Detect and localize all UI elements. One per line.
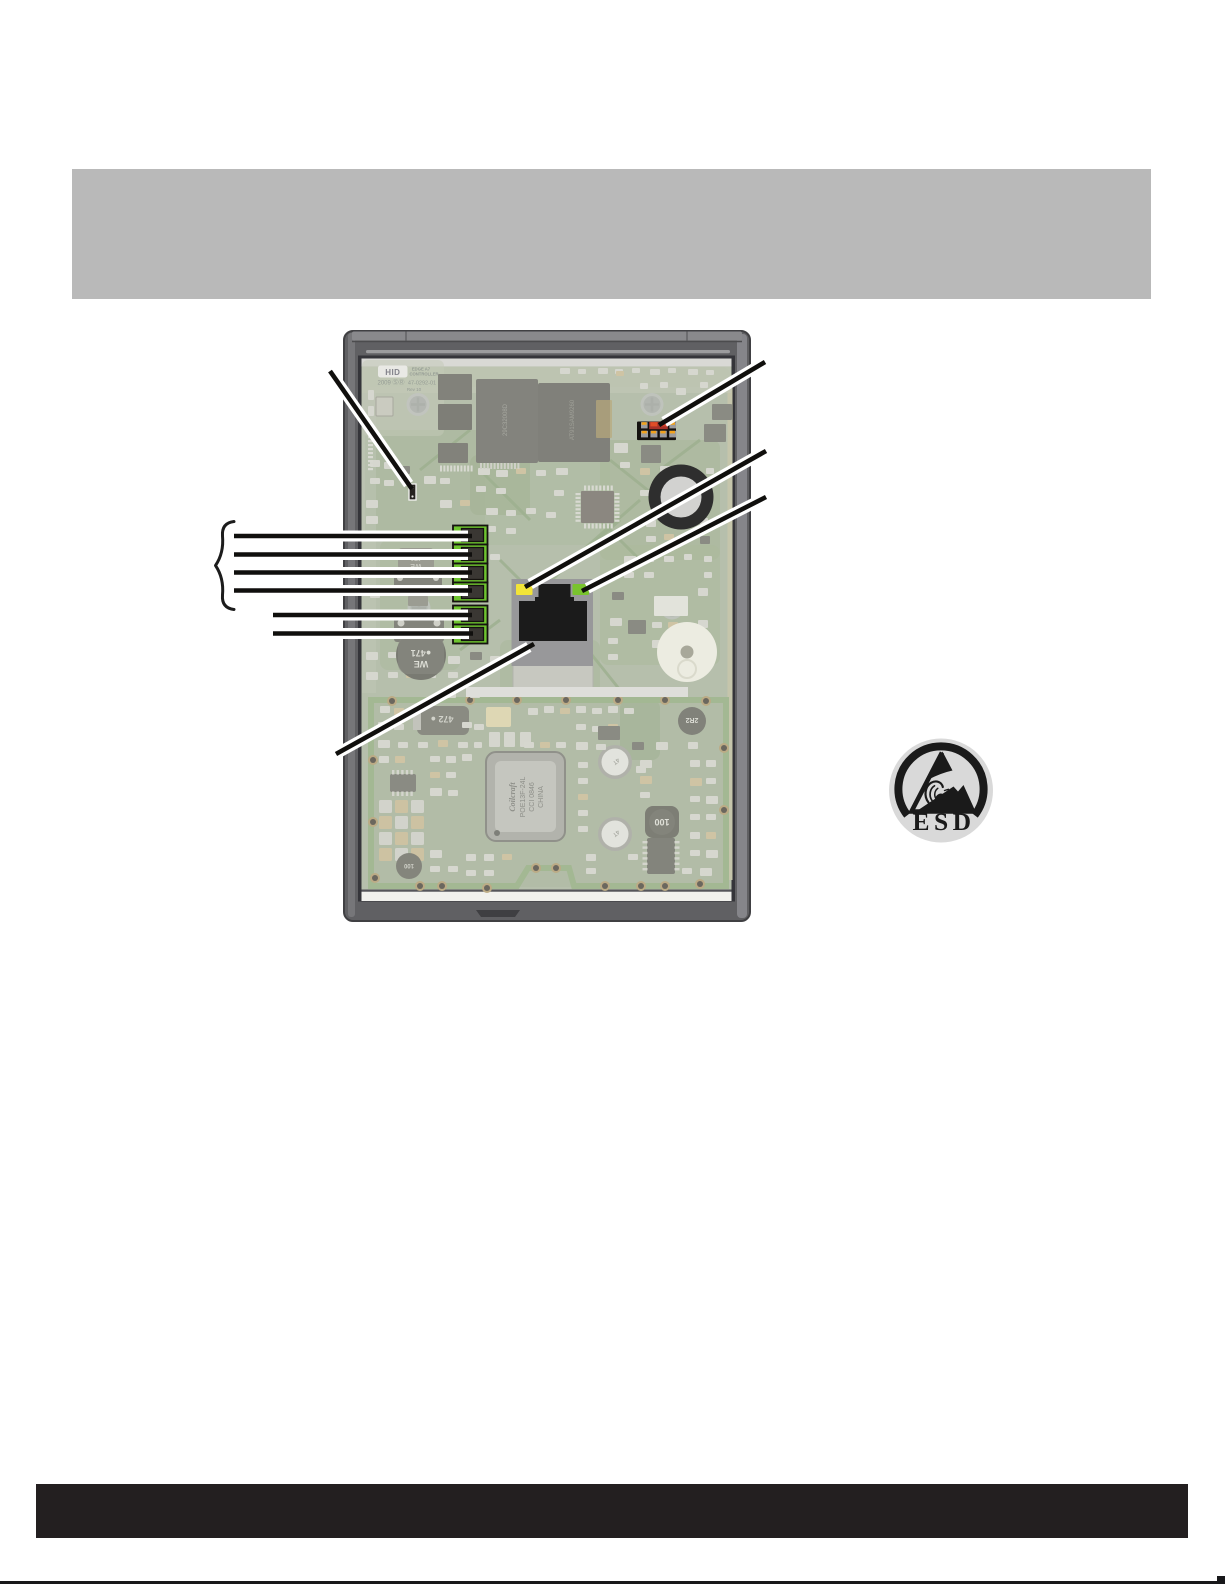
svg-text:100: 100 (654, 817, 669, 827)
svg-text:100: 100 (403, 862, 414, 868)
svg-text:47-0292-01: 47-0292-01 (408, 381, 436, 387)
svg-text:Coilcraft: Coilcraft (508, 782, 517, 812)
svg-text:CCI 0846: CCI 0846 (529, 782, 536, 812)
svg-text:HID: HID (385, 368, 400, 377)
svg-text:2R2: 2R2 (685, 716, 698, 723)
svg-text:2009 ⓈⓇ: 2009 ⓈⓇ (377, 379, 404, 387)
svg-text:CONTROLLER: CONTROLLER (409, 372, 438, 377)
svg-text:29C32008D: 29C32008D (503, 403, 509, 436)
svg-text:Rev 10: Rev 10 (407, 387, 422, 392)
svg-text:AT91SAM9260: AT91SAM9260 (570, 399, 576, 440)
svg-text:POE13F-24L: POE13F-24L (520, 776, 527, 817)
svg-text:●471: ●471 (411, 648, 431, 658)
svg-text:WE: WE (414, 659, 429, 669)
svg-text:472 ●: 472 ● (431, 714, 454, 724)
svg-text:CHINA: CHINA (538, 786, 545, 808)
svg-text:ESD: ESD (912, 807, 975, 836)
